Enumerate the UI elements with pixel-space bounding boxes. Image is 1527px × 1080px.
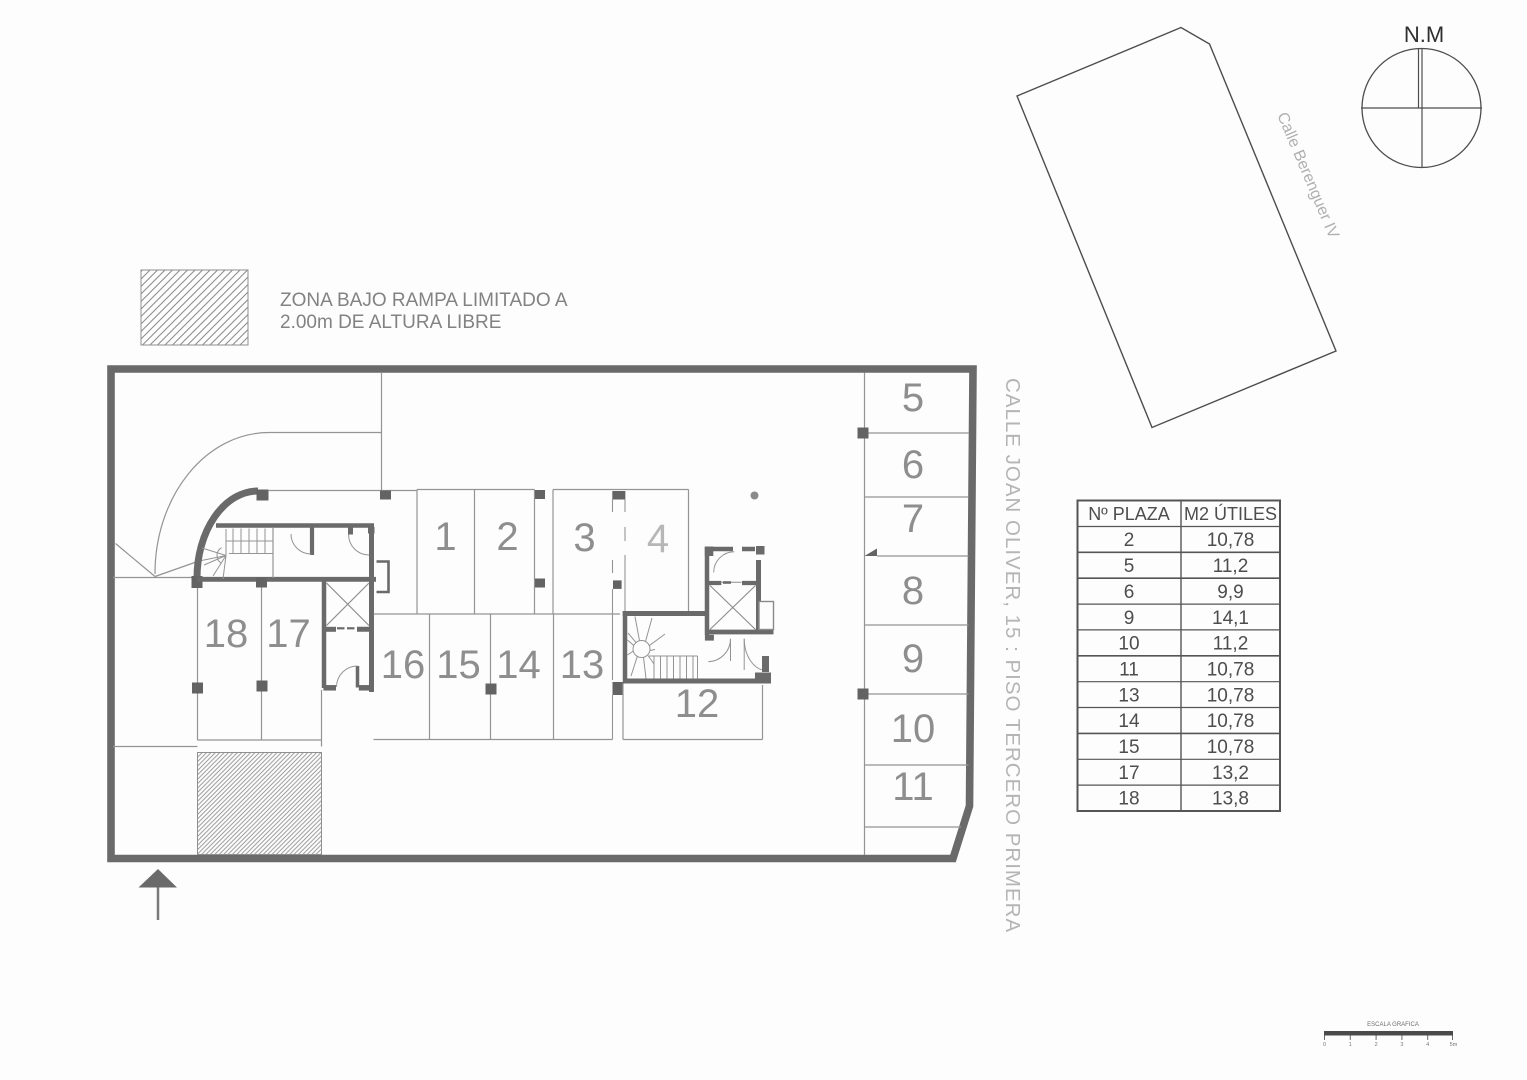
svg-text:11: 11 — [1119, 660, 1139, 681]
svg-text:CALLE JOAN OLIVER, 15 : PISO T: CALLE JOAN OLIVER, 15 : PISO TERCERO PRI… — [1001, 378, 1024, 933]
svg-text:18: 18 — [204, 612, 249, 656]
svg-text:8: 8 — [902, 569, 924, 613]
svg-text:11,2: 11,2 — [1213, 556, 1249, 577]
svg-text:10,78: 10,78 — [1207, 530, 1255, 551]
svg-text:16: 16 — [381, 643, 426, 687]
svg-text:12: 12 — [675, 682, 720, 726]
svg-text:1: 1 — [434, 515, 456, 559]
svg-text:17: 17 — [266, 612, 311, 656]
svg-text:M2 ÚTILES: M2 ÚTILES — [1184, 503, 1277, 524]
svg-text:5m: 5m — [1450, 1042, 1458, 1048]
svg-text:9: 9 — [902, 637, 924, 681]
svg-text:13,8: 13,8 — [1212, 789, 1249, 810]
svg-text:18: 18 — [1118, 789, 1139, 810]
svg-text:5: 5 — [1124, 556, 1135, 577]
svg-text:2: 2 — [1124, 530, 1135, 551]
svg-text:10: 10 — [1118, 634, 1139, 655]
svg-text:11,2: 11,2 — [1213, 634, 1249, 655]
svg-text:3: 3 — [573, 516, 595, 560]
svg-text:14: 14 — [1118, 711, 1140, 732]
svg-text:2.00m DE ALTURA LIBRE: 2.00m DE ALTURA LIBRE — [280, 312, 501, 333]
svg-text:15: 15 — [436, 643, 481, 687]
svg-text:2: 2 — [496, 515, 518, 559]
svg-text:9,9: 9,9 — [1217, 582, 1243, 603]
svg-text:4: 4 — [1426, 1042, 1429, 1048]
svg-text:4: 4 — [647, 517, 669, 561]
svg-text:13: 13 — [560, 643, 605, 687]
svg-text:10,78: 10,78 — [1207, 737, 1255, 758]
svg-text:2: 2 — [1375, 1042, 1378, 1048]
svg-text:11: 11 — [892, 765, 934, 809]
svg-text:13,2: 13,2 — [1212, 763, 1249, 784]
svg-text:ZONA BAJO RAMPA LIMITADO A: ZONA BAJO RAMPA LIMITADO A — [280, 290, 568, 311]
svg-text:Calle Berenguer IV: Calle Berenguer IV — [1273, 110, 1342, 241]
svg-text:Nº PLAZA: Nº PLAZA — [1088, 504, 1170, 524]
svg-text:ESCALA GRAFICA: ESCALA GRAFICA — [1367, 1022, 1419, 1028]
svg-text:14,1: 14,1 — [1212, 608, 1249, 629]
svg-text:9: 9 — [1124, 608, 1135, 629]
svg-text:7: 7 — [902, 497, 924, 541]
svg-text:1: 1 — [1349, 1042, 1352, 1048]
svg-text:10,78: 10,78 — [1207, 660, 1255, 681]
svg-text:0: 0 — [1323, 1042, 1326, 1048]
svg-text:14: 14 — [496, 643, 541, 687]
svg-text:6: 6 — [1124, 582, 1135, 603]
svg-text:3: 3 — [1400, 1042, 1403, 1048]
svg-text:10,78: 10,78 — [1207, 711, 1255, 732]
svg-text:5: 5 — [902, 376, 924, 420]
svg-text:6: 6 — [902, 443, 924, 487]
svg-text:N.M: N.M — [1404, 22, 1444, 47]
svg-text:17: 17 — [1118, 763, 1139, 784]
svg-text:10: 10 — [891, 707, 936, 751]
svg-text:10,78: 10,78 — [1207, 686, 1255, 707]
svg-text:13: 13 — [1118, 686, 1139, 707]
svg-text:15: 15 — [1118, 737, 1139, 758]
